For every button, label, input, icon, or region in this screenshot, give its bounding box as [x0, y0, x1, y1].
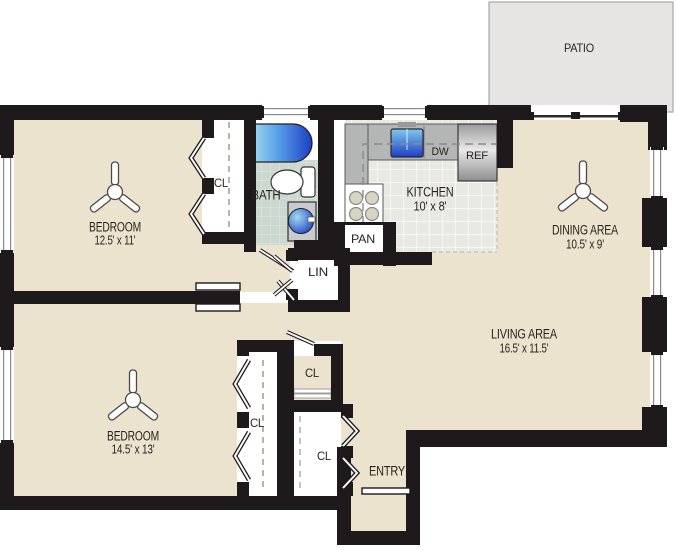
window-right-2	[650, 245, 664, 300]
bathtub-icon	[250, 124, 312, 162]
window-left-1	[0, 152, 14, 256]
window-left-2	[0, 344, 14, 446]
bedroom2-door-open-flat	[196, 304, 240, 311]
window-right-3	[650, 350, 664, 410]
patio-label: PATIO	[564, 43, 594, 55]
linen-closet-label: LIN	[308, 267, 328, 279]
floor-plan: PATIO	[0, 0, 677, 550]
closet-label-bedroom1: CL	[214, 178, 229, 190]
bath-faucet-icon	[308, 217, 315, 222]
window-bath	[259, 105, 313, 120]
dining-name-label: DINING AREA	[552, 223, 618, 238]
patio-area: PATIO	[489, 2, 673, 112]
kitchen-faucet-icon	[398, 122, 416, 127]
kitchen-dims-label: 10' x 8'	[414, 199, 447, 213]
entry-door-open-flat	[362, 488, 410, 494]
bedroom2-dims-label: 14.5' x 13'	[112, 442, 155, 456]
living-name-label: LIVING AREA	[491, 327, 557, 342]
bedroom1-dims-label: 12.5' x 11'	[95, 233, 136, 247]
dishwasher-label: DW	[432, 146, 450, 158]
dining-dims-label: 10.5' x 9'	[566, 237, 604, 251]
patio-sliding-door	[528, 105, 624, 120]
refrigerator-label: REF	[466, 150, 488, 162]
closet-label-hall: CL	[317, 451, 332, 463]
stove-icon	[345, 184, 383, 226]
closet-label-bedroom2: CL	[250, 418, 265, 430]
window-kitchen	[379, 105, 430, 120]
pantry-label: PAN	[351, 234, 375, 246]
patio-slab	[489, 2, 673, 112]
living-dims-label: 16.5' x 11.5'	[500, 341, 549, 355]
bath-label: BATH	[252, 188, 281, 203]
closet-label-storage: CL	[305, 368, 320, 380]
entry-label: ENTRY	[369, 464, 405, 479]
floor-plan-page: PATIO	[0, 0, 677, 550]
kitchen-name-label: KITCHEN	[407, 185, 454, 200]
bedroom-door-open-flat	[196, 283, 240, 290]
window-right-1	[650, 145, 664, 201]
